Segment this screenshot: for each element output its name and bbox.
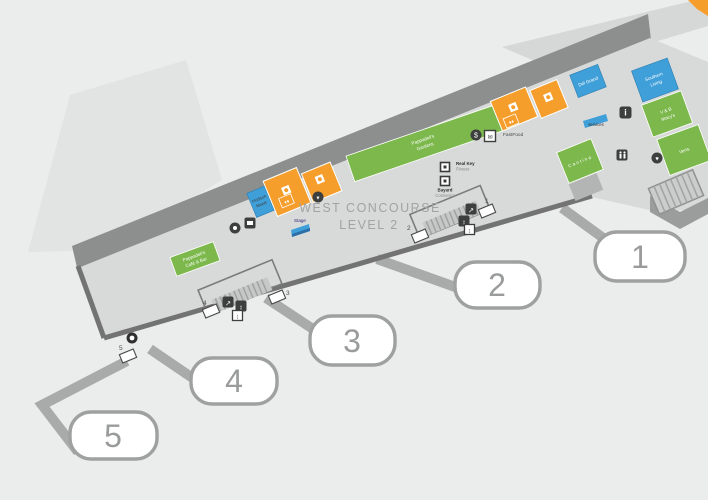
lift-icon-east[interactable]: ↕ xyxy=(465,225,475,235)
gate-bubble-5[interactable]: 5 xyxy=(70,412,157,459)
lift-icon-west[interactable]: ↕ xyxy=(233,311,243,321)
gate-connector-3-num: 3 xyxy=(286,290,290,297)
gate-bubble-4[interactable]: 4 xyxy=(191,358,277,404)
gate-bubble-3[interactable]: 3 xyxy=(310,316,395,365)
fitness-kiosk-label-1: Real Key xyxy=(456,161,475,166)
svg-text:↗: ↗ xyxy=(468,208,474,215)
concourse-title-line2: LEVEL 2 xyxy=(339,218,398,232)
svg-text:↕: ↕ xyxy=(236,314,239,321)
envelope-glyph: ✉ xyxy=(487,135,492,141)
fitness-kiosk-label-2: Fitness xyxy=(456,167,470,172)
photo-spot-icon[interactable] xyxy=(245,218,256,229)
assistance-point-dot xyxy=(130,336,135,341)
svg-text:i: i xyxy=(624,108,627,118)
gate-connector-4-num: 4 xyxy=(203,300,207,307)
gate-bubble-4-num: 4 xyxy=(225,363,243,399)
concourse-title-line1: WEST CONCOURSE xyxy=(299,201,441,215)
water-fountain-dot xyxy=(233,226,237,230)
svg-text:↗: ↗ xyxy=(225,301,231,308)
gate-bubble-2[interactable]: 2 xyxy=(455,262,540,308)
gate-connector-2-num: 2 xyxy=(407,225,411,232)
stage-label: Stage xyxy=(294,218,306,223)
gate-bubble-5-num: 5 xyxy=(104,418,122,454)
gate-bubble-2-num: 2 xyxy=(488,267,506,303)
gate-bubble-1-num: 1 xyxy=(631,239,649,275)
gate-bubble-1[interactable]: 1 xyxy=(595,232,685,281)
services-label: services xyxy=(588,122,603,127)
heart-glyph: ♥ xyxy=(655,157,659,163)
gate-bubble-3-num: 3 xyxy=(343,323,361,359)
info-icon[interactable]: i xyxy=(620,107,632,119)
svg-text:↕: ↕ xyxy=(468,228,471,235)
cosmetics-kiosk-label-1: Bayard xyxy=(438,188,453,193)
cosmetics-kiosk-label-2: Cosmetics xyxy=(435,193,455,198)
gate-connector-1-num: 1 xyxy=(485,198,489,205)
escalator-icon-east[interactable]: ↗ xyxy=(466,204,477,215)
restroom-icon-east[interactable] xyxy=(617,150,628,161)
fast-food-label: FastFood xyxy=(503,132,524,138)
gate-connector-5-num: 5 xyxy=(119,345,123,352)
airport-map: Hudson News ♦♦ Pappadeli's Gardens ♦♦ xyxy=(0,0,708,500)
escalator-icon-west[interactable]: ↗ xyxy=(223,297,234,308)
mailbox-icon[interactable]: ✉ xyxy=(485,131,496,142)
dollar-glyph: $ xyxy=(474,133,478,140)
map-canvas: Hudson News ♦♦ Pappadeli's Gardens ♦♦ xyxy=(0,0,708,500)
